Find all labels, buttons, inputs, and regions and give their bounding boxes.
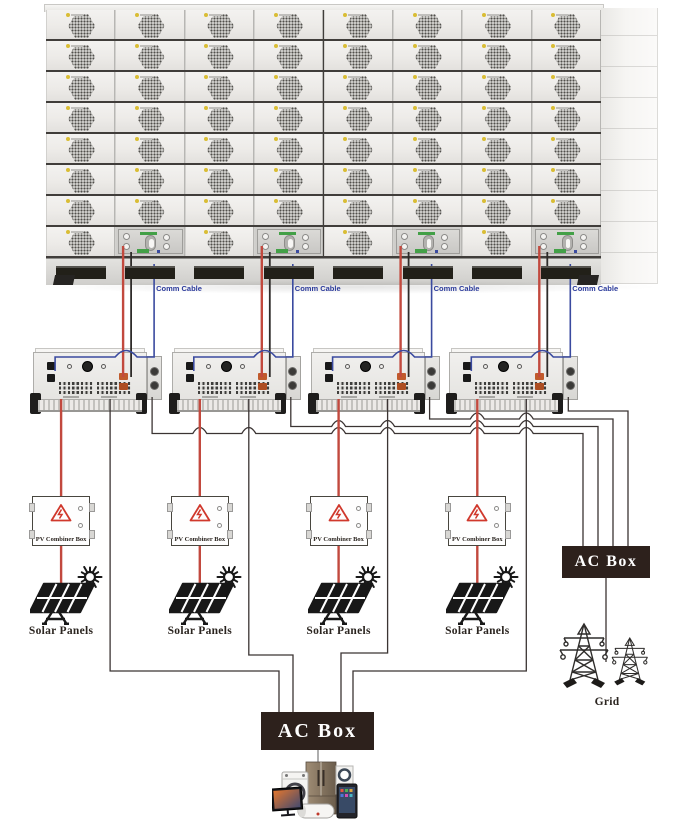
mount-tab — [306, 503, 312, 512]
grid-ac-box-label: AC Box — [575, 553, 638, 571]
solar-panels-label: Solar Panels — [15, 625, 107, 637]
mount-tab — [227, 530, 233, 539]
mount-tab — [89, 503, 95, 512]
mount-tab — [29, 503, 35, 512]
solar-storage-system-diagram: PV Combiner Box Solar Panels PV Combiner… — [0, 0, 685, 829]
pv-combiner-box-label: PV Combiner Box — [172, 536, 228, 543]
base-vent — [403, 266, 453, 279]
rack-foot — [53, 275, 75, 285]
pv-combiner-box: PV Combiner Box — [310, 496, 368, 546]
solar-panels-label: Solar Panels — [431, 625, 523, 637]
warning-triangle-icon — [189, 504, 211, 522]
comm-cable-label: Comm Cable — [156, 284, 216, 293]
water-heater-icon — [298, 804, 334, 818]
solar-panels-label: Solar Panels — [154, 625, 246, 637]
indicator-icon — [356, 506, 361, 511]
panel-icon — [169, 584, 233, 625]
load-ac-box: AC Box — [261, 712, 374, 750]
mount-tab — [167, 503, 173, 512]
transmission-tower-icon — [560, 624, 608, 688]
indicator-icon — [78, 506, 83, 511]
warning-triangle-icon — [328, 504, 350, 522]
pv-combiner-box: PV Combiner Box — [32, 496, 90, 546]
pv-combiner-box-label: PV Combiner Box — [311, 536, 367, 543]
pv-combiner-box: PV Combiner Box — [448, 496, 506, 546]
solar-panel-icon — [308, 566, 392, 626]
mount-tab — [89, 530, 95, 539]
panel-icon — [308, 584, 372, 625]
transmission-tower-icon — [612, 638, 648, 685]
warning-triangle-icon — [50, 504, 72, 522]
indicator-icon — [356, 523, 361, 528]
smartphone-icon — [337, 784, 357, 818]
grid-ac-box: AC Box — [562, 546, 650, 578]
indicator-icon — [217, 506, 222, 511]
base-vent — [264, 266, 314, 279]
base-vent — [472, 266, 522, 279]
mount-tab — [227, 503, 233, 512]
home-appliances-icon — [272, 752, 364, 822]
warning-triangle-icon — [466, 504, 488, 522]
panel-icon — [446, 584, 510, 625]
comm-cable-label: Comm Cable — [434, 284, 494, 293]
pv-combiner-box: PV Combiner Box — [171, 496, 229, 546]
solar-panel-icon — [446, 566, 530, 626]
indicator-icon — [494, 523, 499, 528]
mount-tab — [445, 503, 451, 512]
base-vent — [333, 266, 383, 279]
mount-tab — [505, 530, 511, 539]
mount-tab — [366, 530, 372, 539]
comm-cable-label: Comm Cable — [572, 284, 632, 293]
pv-combiner-box-label: PV Combiner Box — [33, 536, 89, 543]
base-vent — [125, 266, 175, 279]
panel-icon — [30, 584, 94, 625]
solar-panels-label: Solar Panels — [293, 625, 385, 637]
solar-panel-icon — [169, 566, 253, 626]
solar-panel-icon — [30, 566, 114, 626]
load-ac-box-label: AC Box — [278, 720, 357, 743]
grid-label: Grid — [562, 696, 652, 708]
pv-combiner-box-label: PV Combiner Box — [449, 536, 505, 543]
indicator-icon — [494, 506, 499, 511]
base-vent — [194, 266, 244, 279]
indicator-icon — [78, 523, 83, 528]
mount-tab — [505, 503, 511, 512]
mount-tab — [366, 503, 372, 512]
comm-cable-label: Comm Cable — [295, 284, 355, 293]
grid-towers-icon — [554, 618, 662, 694]
indicator-icon — [217, 523, 222, 528]
